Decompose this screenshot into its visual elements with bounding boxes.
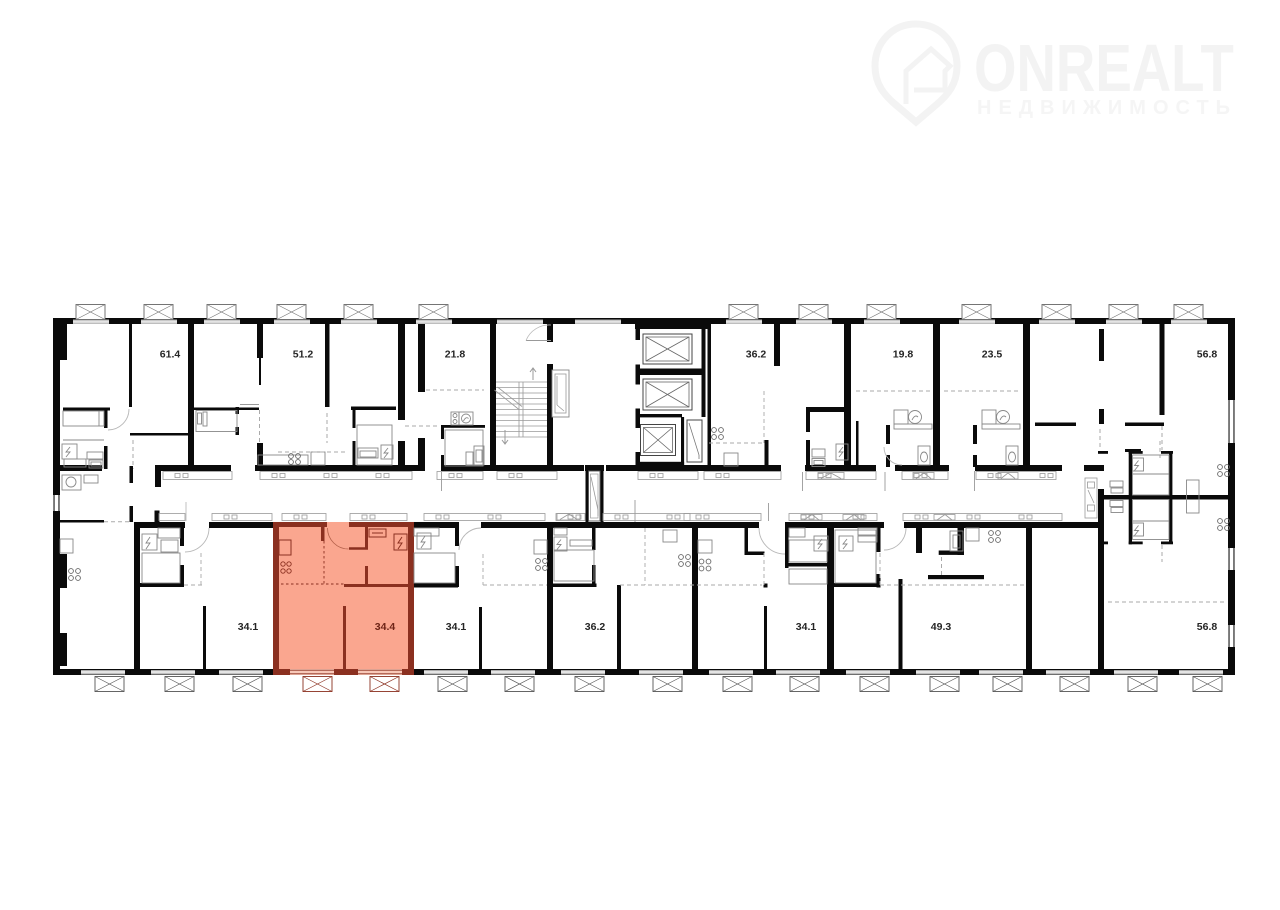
svg-text:34.1: 34.1	[238, 621, 259, 633]
svg-text:23.5: 23.5	[982, 349, 1003, 361]
svg-text:56.8: 56.8	[1197, 349, 1218, 361]
svg-text:34.4: 34.4	[375, 621, 396, 633]
svg-text:36.2: 36.2	[585, 621, 606, 633]
svg-text:56.8: 56.8	[1197, 621, 1218, 633]
svg-text:ONREALT: ONREALT	[974, 31, 1234, 106]
svg-text:49.3: 49.3	[931, 621, 952, 633]
svg-text:19.8: 19.8	[893, 349, 914, 361]
svg-text:34.1: 34.1	[446, 621, 467, 633]
svg-text:51.2: 51.2	[293, 349, 314, 361]
svg-text:61.4: 61.4	[160, 349, 181, 361]
svg-text:21.8: 21.8	[445, 349, 466, 361]
svg-text:34.1: 34.1	[796, 621, 817, 633]
svg-text:НЕДВИЖИМОСТЬ: НЕДВИЖИМОСТЬ	[977, 97, 1237, 119]
svg-text:36.2: 36.2	[746, 349, 767, 361]
